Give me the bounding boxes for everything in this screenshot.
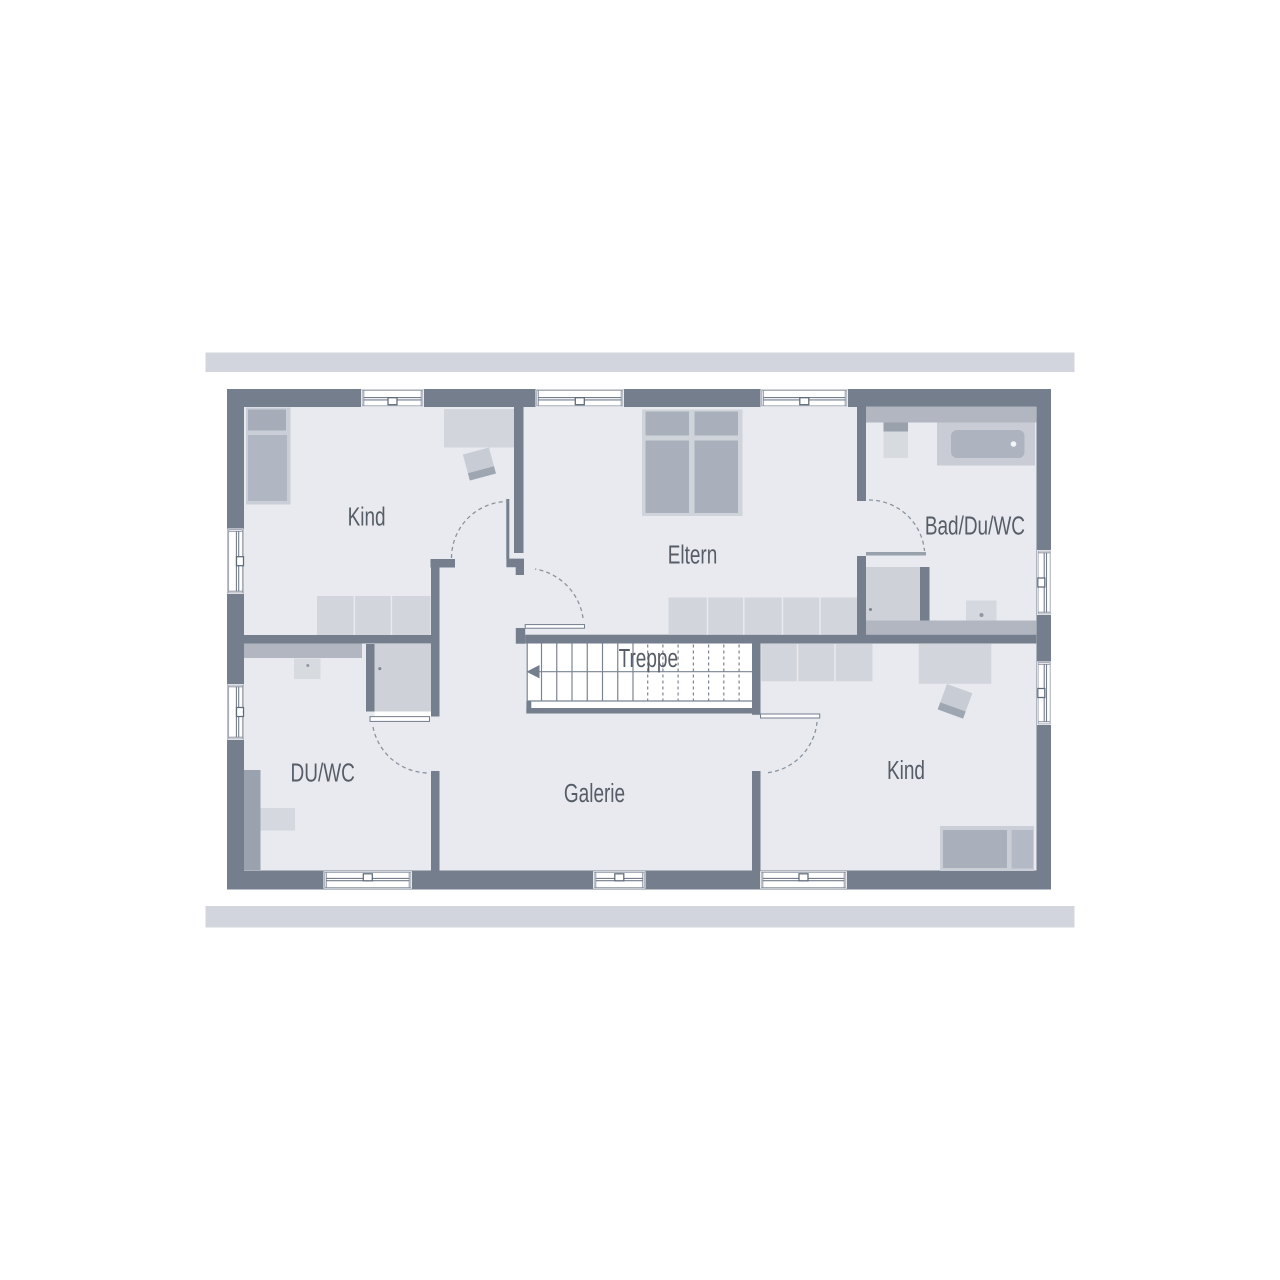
svg-text:Treppe: Treppe: [619, 643, 678, 673]
svg-text:Galerie: Galerie: [564, 778, 625, 808]
svg-text:Kind: Kind: [348, 502, 386, 532]
svg-text:Bad/Du/WC: Bad/Du/WC: [925, 511, 1025, 541]
svg-text:DU/WC: DU/WC: [291, 758, 355, 788]
svg-text:Eltern: Eltern: [668, 540, 718, 570]
svg-text:Kind: Kind: [887, 755, 925, 785]
